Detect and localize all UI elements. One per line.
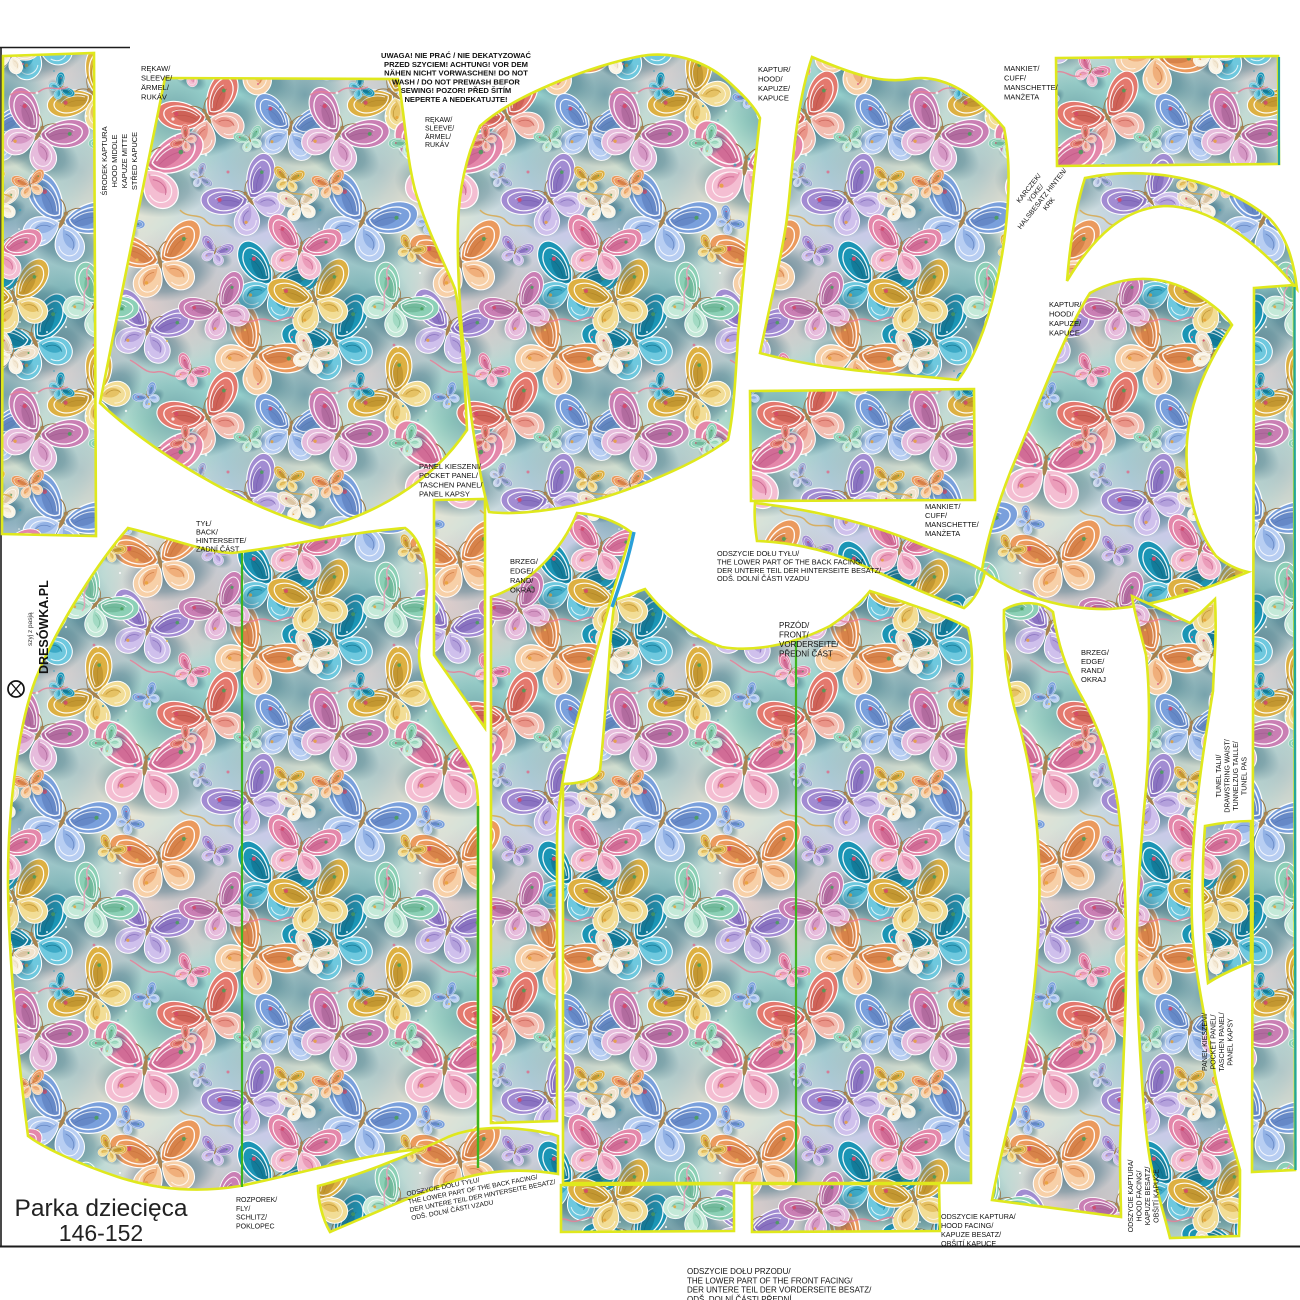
svg-text:ŚRODEK KAPTURAHOOD MIDDLEKAPUZ: ŚRODEK KAPTURAHOOD MIDDLEKAPUZE MITTESTŘ…	[100, 126, 139, 195]
svg-text:KAPTUR/HOOD/KAPUZE/KAPUCE: KAPTUR/HOOD/KAPUZE/KAPUCE	[1049, 300, 1082, 338]
svg-text:ODSZYCIE KAPTURA/HOOD FACING/K: ODSZYCIE KAPTURA/HOOD FACING/KAPUZE BESA…	[1128, 1160, 1161, 1233]
svg-text:PANEL KIESZENI/POCKET PANEL/TA: PANEL KIESZENI/POCKET PANEL/TASCHEN PANE…	[1202, 1012, 1235, 1071]
svg-text:DRESÓWKA.PL: DRESÓWKA.PL	[36, 580, 51, 674]
svg-text:Parka dziecięca: Parka dziecięca	[15, 1195, 188, 1222]
svg-text:szyj z pasją: szyj z pasją	[27, 612, 34, 646]
svg-text:KAPTUR/HOOD/KAPUZE/KAPUCE: KAPTUR/HOOD/KAPUZE/KAPUCE	[758, 65, 791, 103]
svg-text:146-152: 146-152	[59, 1220, 143, 1246]
